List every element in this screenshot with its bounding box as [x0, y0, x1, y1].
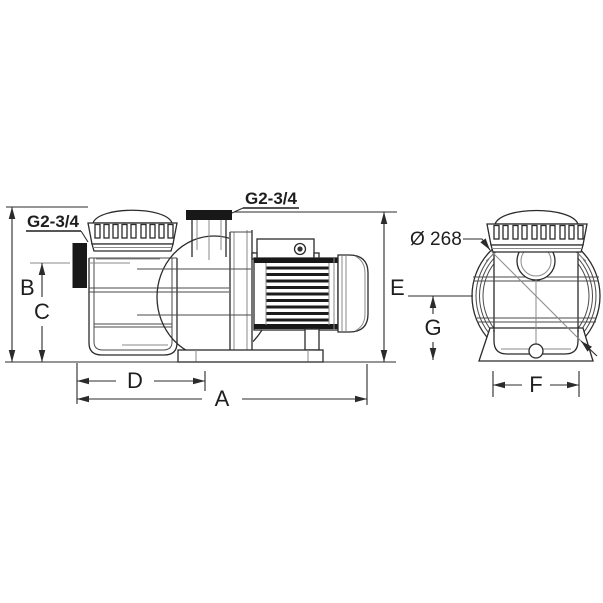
- dimension-label-F: F: [529, 372, 542, 397]
- cable-gland-center: [297, 246, 302, 251]
- pot-inner-wall: [94, 258, 172, 350]
- motor: [252, 239, 368, 350]
- motor-foot: [305, 329, 319, 350]
- lid-rib: [131, 225, 136, 239]
- dimension-C: C: [30, 263, 70, 362]
- fan-cover: [338, 255, 368, 332]
- outlet-port: [186, 210, 232, 220]
- lid-rib: [569, 226, 574, 240]
- lid-rib: [95, 225, 100, 239]
- inlet-thread-text: G2-3/4: [27, 212, 80, 231]
- lid-rib: [513, 226, 518, 240]
- lid-rib: [522, 226, 527, 240]
- dimension-label-D: D: [127, 368, 143, 393]
- dimension-label-C: C: [34, 299, 50, 324]
- pump-dimension-drawing: B C G2-3/4 G2-3/4 E: [0, 0, 603, 603]
- dimension-label-G: G: [424, 315, 441, 340]
- lid-rib: [550, 226, 555, 240]
- pump-bracket: [229, 230, 253, 357]
- lid-rib: [494, 226, 499, 240]
- strainer-pot: [89, 258, 231, 355]
- motor-bottom-band: [254, 324, 338, 329]
- outlet-pipe: [186, 210, 232, 260]
- lid-rib: [168, 225, 173, 239]
- junction-box: [252, 239, 319, 259]
- inlet-thread-label: G2-3/4: [26, 212, 88, 242]
- motor-top-band: [254, 258, 338, 263]
- dimension-A: A: [77, 364, 367, 411]
- lid-rib: [541, 226, 546, 240]
- lid-dome: [93, 210, 172, 223]
- dimension-label-B: B: [20, 275, 35, 300]
- outlet-thread-text: G2-3/4: [245, 189, 298, 208]
- dimension-D: D: [77, 363, 205, 404]
- dimension-label-A: A: [215, 386, 230, 411]
- pot-outline: [89, 258, 177, 355]
- leader-line: [463, 239, 490, 250]
- inlet-port: [73, 243, 88, 288]
- base-plate: [178, 350, 323, 362]
- dimension-F: F: [493, 371, 579, 397]
- front-view: [472, 211, 600, 362]
- bracket-mask: [229, 232, 253, 357]
- dimension-label-E: E: [390, 275, 405, 300]
- strainer-lid-side: [88, 210, 177, 251]
- lid-rib: [503, 226, 508, 240]
- lid-rib: [578, 226, 583, 240]
- diameter-label: Ø 268: [410, 229, 462, 250]
- motor-fins: [266, 268, 329, 320]
- lid-rib: [122, 225, 127, 239]
- lid-ribs: [95, 225, 173, 239]
- drawing-svg: B C G2-3/4 G2-3/4 E: [0, 0, 603, 603]
- lid-rib: [104, 225, 109, 239]
- outlet-thread-label: G2-3/4: [232, 189, 299, 213]
- lid-rib: [150, 225, 155, 239]
- lid-rib: [532, 226, 537, 240]
- lid-rib: [141, 225, 146, 239]
- lid-dome: [495, 211, 578, 225]
- base-side: [178, 350, 323, 362]
- lid-rib: [113, 225, 118, 239]
- dimension-G: G: [408, 296, 473, 360]
- lid-rib: [560, 226, 565, 240]
- drain-plug: [529, 344, 543, 358]
- side-view: [73, 210, 369, 362]
- lid-rib: [159, 225, 164, 239]
- leader-line: [81, 231, 88, 242]
- strainer-lid-front: [487, 211, 587, 253]
